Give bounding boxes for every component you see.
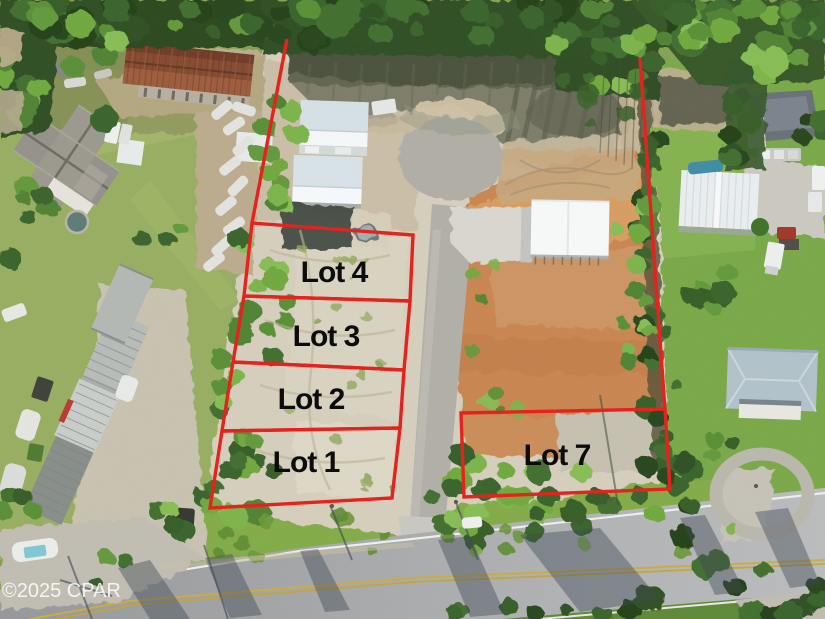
svg-text:Lot 1: Lot 1 — [273, 446, 340, 479]
svg-text:Lot 3: Lot 3 — [293, 320, 360, 353]
svg-text:Lot 7: Lot 7 — [524, 439, 591, 472]
svg-text:Lot 4: Lot 4 — [301, 256, 369, 289]
svg-text:©2025 CPAR: ©2025 CPAR — [2, 580, 121, 602]
svg-text:Lot 2: Lot 2 — [278, 383, 345, 416]
